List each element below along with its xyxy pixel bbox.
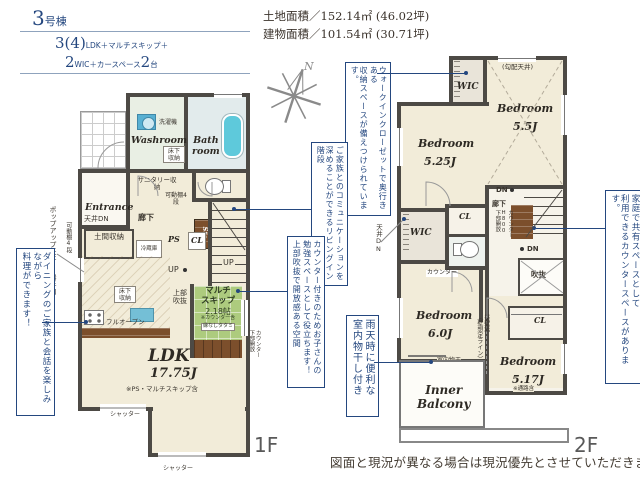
header-underline-2 xyxy=(20,73,250,74)
f2-wic-mid-ladder xyxy=(403,214,409,254)
wall xyxy=(126,173,130,229)
connector-wic xyxy=(377,73,466,74)
f1-floor-label: 1F xyxy=(254,434,278,457)
f2-wic-top-ladder xyxy=(454,61,460,101)
floorplan-page: 3号棟 3(4)LDK＋マルチスキップ＋ 2WIC＋カースペース2台 土地面積／… xyxy=(0,0,640,480)
connector-dining-dot xyxy=(84,320,88,324)
bathtub-icon xyxy=(222,114,243,158)
bedroom517-label: Bedroom xyxy=(500,356,556,369)
annotation-drying-col2: 室内物干し付き xyxy=(351,319,362,413)
footer-disclaimer: 図面と現況が異なる場合は現況優先とさせていただきます。 xyxy=(330,456,640,470)
f2-dn-1-label: DN xyxy=(496,186,508,194)
connector-shared-counter-dot xyxy=(532,226,536,230)
sloped-ceiling-label: (勾配天井) xyxy=(502,64,533,71)
f2-void-label: 吹抜 xyxy=(531,271,546,280)
f2-wic-mid-label: WIC xyxy=(410,228,431,238)
area-info: 土地面積／152.14㎡ (46.02坪) 建物面積／101.54㎡ (30.7… xyxy=(263,8,429,44)
f1-ceiling-dn-label: 天井DN xyxy=(84,215,109,223)
bedroom60-size-label: 6.0J xyxy=(428,328,452,341)
shutter-2-label: シャッター xyxy=(163,466,193,473)
annotation-shared-counter-col2: 利用できるカウンタースペースがあります。 xyxy=(610,194,629,380)
wall xyxy=(401,260,447,264)
f1-porch xyxy=(80,111,126,169)
f1-open-patch xyxy=(153,403,245,415)
annotation-dining-col1: ダイニングのご家族と会話を楽しみながら xyxy=(31,252,50,412)
f1-up-1-label: UP xyxy=(222,258,235,267)
inner-balcony-label: InnerBalcony xyxy=(417,384,470,412)
f2-counter-h800-label: カウンター H800 下部開放 xyxy=(494,210,513,252)
f1-toilet-icon xyxy=(205,178,231,193)
f1-window-bottom-2 xyxy=(158,452,206,460)
full-open-label: フルオープン xyxy=(106,319,145,326)
entrance-label: Entrance xyxy=(85,203,133,214)
connector-wic-dot xyxy=(464,71,468,75)
compass: N N xyxy=(268,58,324,124)
bedroom517-note-label: ※通路含 xyxy=(513,386,534,392)
connector-counter-dot xyxy=(236,289,240,293)
building-number-suffix: 号棟 xyxy=(45,15,67,28)
sanitary-storage-label: サニタリー収納 xyxy=(136,177,178,192)
bedroom525-label: Bedroom xyxy=(418,138,474,151)
counter-lower-open-label: カウンター 下部開放 xyxy=(248,330,261,378)
connector-dining xyxy=(42,322,86,323)
f1-doma-storage-label: 土間収納 xyxy=(94,233,124,242)
multi-skip-steps xyxy=(194,340,242,358)
f2-dn-2-dot xyxy=(520,247,524,251)
f2-hallway-label: 廊下 xyxy=(492,200,506,208)
f2-wic-top-label: WIC xyxy=(457,82,478,92)
annotation-shared-counter: 家庭で共有スペースとして 利用できるカウンタースペースがあります。 xyxy=(605,190,640,384)
f1-cl-box: CL xyxy=(188,232,206,250)
header-underline-1 xyxy=(20,31,250,32)
annotation-counter-col2: 勉強スペースとして役立ちます！ xyxy=(302,240,311,384)
f2-dn-2-label: DN xyxy=(527,245,539,253)
f2-cl-1-label: CL xyxy=(459,212,471,221)
connector-shared-counter xyxy=(536,228,605,229)
annotation-wic-col2: 収納スペースが備えつけられています。 xyxy=(350,66,368,212)
shutter-1-label: シャッター xyxy=(110,412,140,419)
annotation-drying: 雨天時に便利な 室内物干し付き xyxy=(346,315,379,417)
annotation-dining-col2: 料理ができます！ xyxy=(21,252,30,412)
annotation-wic: ウォークインクローゼットで奥行きある 収納スペースが備えつけられています。 xyxy=(345,62,391,216)
f1-window-right xyxy=(241,300,248,336)
plan-text-3: 台 xyxy=(150,60,158,69)
compass-star xyxy=(259,61,330,132)
f2-window-left-1 xyxy=(396,128,403,166)
ldk-note-label: ※PS・マルチスキップ含 xyxy=(126,386,198,393)
annotation-counter: カウンター付きのためお子さんの 勉強スペースとして役立ちます！ 上部吹抜で開放感… xyxy=(287,236,325,388)
washing-machine-label: 洗濯機 xyxy=(159,120,177,127)
f1-up-2-dot xyxy=(183,268,187,272)
annotation-counter-col1: カウンター付きのためお子さんの xyxy=(312,240,321,384)
building-area: 建物面積／101.54㎡ (30.71坪) xyxy=(263,26,429,44)
f1-kitchen-counter xyxy=(82,328,170,338)
f1-ps-label: PS xyxy=(168,235,180,244)
annotation-wic-col1: ウォークインクローゼットで奥行きある xyxy=(369,66,387,212)
f1-hallway-label: 廊下 xyxy=(138,213,154,222)
f2-window-top xyxy=(498,55,536,62)
bathroom-label: Bathroom xyxy=(192,136,220,158)
balcony-strip xyxy=(399,428,569,443)
plan-number-1: 3(4) xyxy=(55,34,86,52)
ldk-size-label: 17.75J xyxy=(150,367,197,382)
connector-drying xyxy=(374,362,430,363)
bedroom55-size-label: 5.5J xyxy=(513,121,537,134)
f2-dn-1-dot xyxy=(510,188,514,192)
plan-number-2: 2 xyxy=(65,53,75,71)
annotation-counter-col3: 上部吹抜で開放感ある空間 xyxy=(292,240,301,384)
f1-underfloor-storage-2: 床下収納 xyxy=(114,286,136,303)
f2-cl-2-label: CL xyxy=(534,316,546,325)
connector-stairs-dot xyxy=(232,207,236,211)
upper-void-label: 上部吹抜 xyxy=(172,289,188,305)
header-title-block: 3号棟 3(4)LDK＋マルチスキップ＋ 2WIC＋カースペース2台 xyxy=(20,6,250,74)
f2-toilet-icon xyxy=(453,241,479,256)
bedroom525-size-label: 5.25J xyxy=(424,156,456,169)
multi-skip-label: マルチ スキップ 2.18帖 ※カウンター含 縁なしタタミ xyxy=(196,287,240,331)
f2-window-left-2 xyxy=(396,298,403,338)
annotation-drying-col1: 雨天時に便利な xyxy=(363,319,374,413)
movable-shelf-hall-label: 可動棚4段 xyxy=(164,193,188,207)
bedroom517-size-label: 5.17J xyxy=(512,374,544,387)
f2-window-right-1 xyxy=(561,95,568,135)
bedroom60-label: Bedroom xyxy=(416,310,472,323)
washing-machine-icon xyxy=(137,114,156,130)
compass-north-label: N xyxy=(303,60,314,73)
annotation-shared-counter-col1: 家庭で共有スペースとして xyxy=(630,194,639,380)
connector-counter xyxy=(240,291,287,292)
movable-shelf-left-label: 可動棚4段 xyxy=(64,222,71,262)
plan-text-2: WIC＋カースペース xyxy=(75,60,141,69)
plan-number-3: 2 xyxy=(141,53,151,71)
f2-ceiling-dn-label: 天井DN xyxy=(374,224,381,258)
annotation-dining: ダイニングのご家族と会話を楽しみながら 料理ができます！ xyxy=(16,248,55,416)
f2-floor-label: 2F xyxy=(574,434,598,457)
land-area: 土地面積／152.14㎡ (46.02坪) xyxy=(263,8,429,26)
ldk-label: LDK xyxy=(148,347,189,367)
building-number: 3 xyxy=(32,6,45,30)
plan-text-1: LDK＋マルチスキップ＋ xyxy=(86,41,168,50)
annotation-stairs-col1: ご家族とのコミュニケーションを xyxy=(335,146,344,282)
f1-bath-window xyxy=(214,91,242,98)
connector-stairs xyxy=(235,209,311,210)
f2-counter-label: カウンター xyxy=(426,270,458,277)
f1-backdoor-gap xyxy=(77,258,84,282)
f1-stairs xyxy=(212,202,246,288)
f1-underfloor-storage-1: 床下収納 xyxy=(163,146,185,163)
connector-drying-dot xyxy=(429,360,433,364)
f2-stairs-counter xyxy=(511,205,533,239)
bedroom55-label: Bedroom xyxy=(497,103,553,116)
f2-window-right-2 xyxy=(561,344,568,374)
